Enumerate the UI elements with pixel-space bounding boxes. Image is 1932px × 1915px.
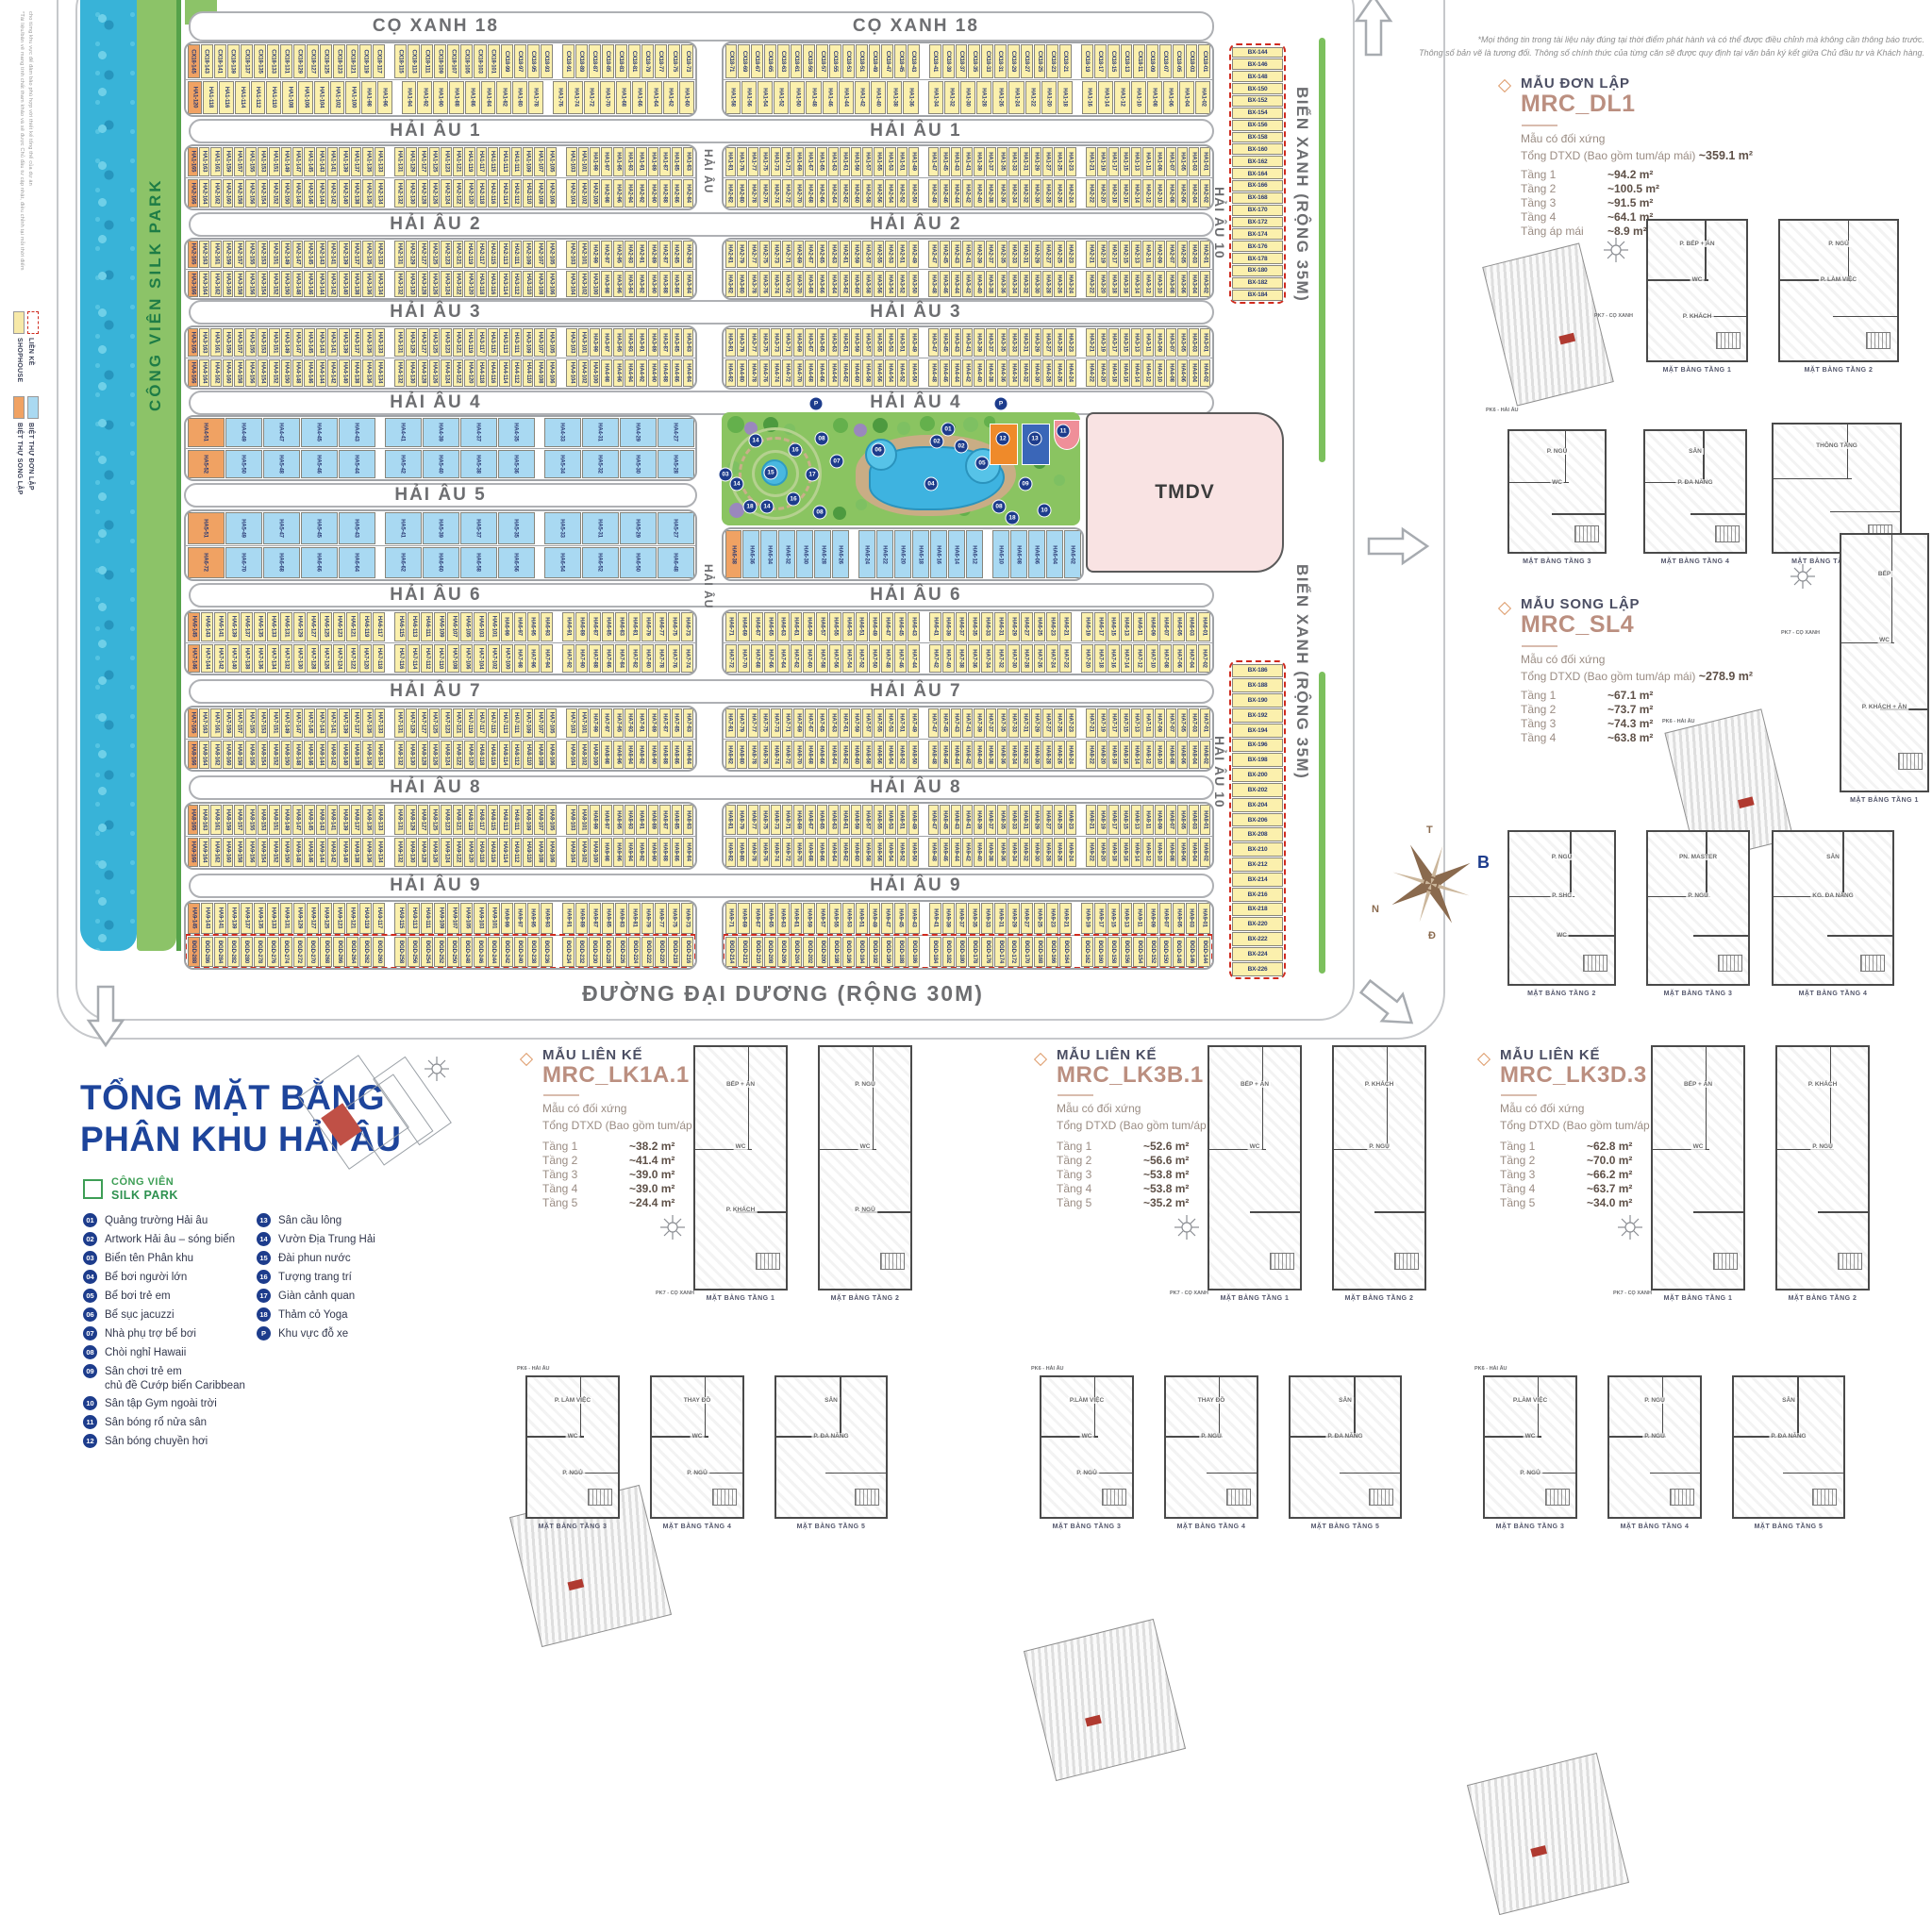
compass-north: B [1477,853,1490,873]
lot-cell: HA9-23 [1046,903,1058,934]
lot-cell: ĐGD-162 [1081,937,1093,968]
room-label: BẾP + ĂN [724,1081,757,1088]
lot-cell: HA2-71 [782,241,792,268]
model-lk3b-code: MRC_LK3B.1 [1057,1062,1204,1089]
lot-cell: HA6-23 [1046,612,1058,641]
legend-item-label: Sân tập Gym ngoài trời [105,1396,217,1409]
alley-gap [558,805,566,835]
lot-cell: HA6-61 [791,612,803,641]
alley-gap [919,359,927,388]
lot-cell: HA1-60 [679,81,694,115]
lot-cell: HA3-19 [1097,328,1108,357]
lot-cell: HA7-32 [994,644,1007,674]
lot-cell: CX18-39 [942,44,955,78]
lot-cell: HA7-101 [578,708,589,738]
alley-gap [920,644,928,674]
lot-cell: HA8-139 [339,805,349,835]
alley-gap [919,81,927,115]
lot-cell: HA2-01 [1200,241,1210,268]
lot-cell: HA5-36 [498,450,535,479]
lot-cell: HA6-89 [575,612,588,641]
lot-cell: HA1-143 [316,147,326,176]
lot-cell: HA9-49 [869,903,881,934]
lot-cell: HA1-77 [748,147,758,176]
lot-cell: HA7-93 [625,708,635,738]
lot-cell: HA8-34 [1008,741,1019,770]
lot-cell: HA9-122 [453,838,463,868]
lot-cell: HA3-164 [199,271,209,298]
lot-cell: HA4-134 [375,359,385,388]
lot-cell: HA9-116 [488,838,498,868]
floor-plan-caption: MẶT BẰNG TẦNG 1 [1840,792,1929,811]
lot-cell: HA4-160 [223,359,233,388]
alley-gap [1076,271,1085,298]
legend-item-number: 05 [83,1289,97,1303]
amenity-marker-05: 05 [975,457,990,471]
lot-cell: HA4-45 [301,418,338,447]
alley-gap [553,903,561,934]
lot-cell: HA7-81 [725,708,736,738]
lot-cell: HA2-144 [316,179,326,208]
lot-cell: HA2-151 [269,241,279,268]
lot-cell: ĐGD-214 [725,937,738,968]
lot-cell: HA9-05 [1173,903,1185,934]
lot-cell: HA1-159 [223,147,233,176]
lot-cell: HA6-02 [1064,530,1081,578]
lot-cell: HA1-05 [1177,147,1188,176]
lot-cell: HA1-103 [566,147,576,176]
lot-cell: CX18-77 [655,44,667,78]
lot-cell: CX18-83 [615,44,627,78]
stair-icon [1583,955,1607,972]
tree-icon [856,499,867,510]
lot-cell: BX-168 [1232,192,1283,204]
lot-cell: HA3-61 [840,328,850,357]
lot-cell: HA3-110 [523,271,533,298]
lot-cell: HA2-65 [817,241,827,268]
lot-cell: HA2-160 [223,179,233,208]
lot-cell: HA4-33 [544,418,581,447]
lot-cell: HA5-41 [385,512,422,544]
lot-cell: HA2-139 [339,241,349,268]
legend-item-number: 08 [83,1345,97,1359]
lot-cell: HA1-137 [351,147,361,176]
lot-cell: HA9-110 [523,838,533,868]
lot-cell: HA8-108 [534,741,544,770]
lot-cell: HA8-105 [546,805,557,835]
legend-item-label: Thảm cỏ Yoga [278,1307,348,1321]
lot-cell: HA8-155 [245,805,256,835]
plan-wall [1818,1211,1868,1213]
lot-cell: HA9-80 [737,838,747,868]
lot-cell: HA1-15 [1120,147,1130,176]
alley-gap [919,708,927,738]
lot-cell: HA3-116 [488,271,498,298]
lot-cell: HA6-48 [658,547,694,579]
lot-cell: HA8-118 [476,741,487,770]
lot-cell: HA8-55 [874,805,884,835]
lot-cell: ĐGD-278 [254,937,266,968]
room-label: WC [1555,932,1569,939]
lot-cell: BX-198 [1232,753,1283,767]
amenity-marker-07: 07 [830,455,844,469]
lot-cell: HA3-141 [327,328,338,357]
plan-wall [1219,1377,1221,1436]
alley-gap [543,81,552,115]
plan-wall [873,1047,874,1149]
lot-cell: HA7-49 [908,708,919,738]
lot-cell: ĐGD-168 [1034,937,1046,968]
lot-cell: HA1-28 [976,81,991,115]
plan-wall [825,1473,886,1474]
bx-column-bottom: BX-186BX-188BX-190BX-192BX-194BX-196BX-1… [1229,660,1286,979]
lot-cell: BX-214 [1232,873,1283,887]
lot-cell: HA1-81 [725,147,736,176]
road-bien-xanh-label-2: BIỂN XANH (RỘNG 35M) [1292,564,1311,779]
lot-cell: HA6-27 [1021,612,1033,641]
road-title-label: HẢI ÂU 4 [870,392,961,413]
lot-cell: BX-182 [1232,277,1283,289]
alley-gap [919,838,927,868]
legend-swatch-donlap [13,396,25,419]
location-inset-map [300,1057,451,1170]
lot-cell: HA2-17 [1108,241,1119,268]
lot-cell: HA2-95 [613,241,624,268]
legend-item-number: 06 [83,1307,97,1322]
bx-column-top: BX-144BX-146BX-148BX-150BX-152BX-154BX-1… [1229,43,1286,304]
lot-cell: HA3-69 [793,328,804,357]
lot-cell: HA7-36 [968,644,980,674]
lot-cell: HA9-42 [962,838,973,868]
tree-icon [833,418,848,433]
lot-cell: HA9-78 [748,838,758,868]
lot-cell: HA2-159 [223,241,233,268]
lot-cell: HA9-08 [1166,838,1176,868]
lot-cell: CX18-133 [267,44,279,78]
lot-cell: HA2-142 [327,179,338,208]
lot-cell: HA3-62 [840,271,850,298]
lot-cell: HA8-102 [578,741,589,770]
stair-icon [1713,1253,1738,1270]
lot-cell: HA2-02 [1200,179,1210,208]
lot-cell: HA4-156 [245,359,256,388]
lot-cell: HA8-26 [1054,741,1064,770]
lot-cell: HA7-30 [1008,644,1020,674]
lot-cell: HA2-74 [771,179,781,208]
plan-wall [1662,1377,1664,1436]
lot-cell: HA3-165 [188,328,198,357]
lot-cell: HA7-153 [258,708,268,738]
lot-cell: HA3-86 [672,271,682,298]
lot-cell: HA7-34 [981,644,993,674]
lot-cell: HA6-111 [421,612,433,641]
floor-plan-drawing: BẾPWCP. KHÁCH + ĂN [1840,533,1929,792]
sl4-locator-road-label-2: PK6 - HẢI ÂU [1662,719,1695,724]
lot-cell: HA2-35 [997,241,1008,268]
lot-cell: HA8-07 [1166,805,1176,835]
lot-cell: HA3-115 [488,328,498,357]
lot-cell: ĐGD-264 [346,937,358,968]
lot-cell: HA3-39 [974,328,984,357]
lot-cell: ĐGD-148 [1173,937,1185,968]
lot-cell: HA7-17 [1108,708,1119,738]
lot-cell: HA9-36 [997,838,1008,868]
lot-cell: HA9-144 [316,838,326,868]
lot-cell: HA3-153 [258,328,268,357]
lot-cell: HA3-132 [394,271,405,298]
lot-row: CX18-71CX18-69CX18-67CX18-65CX18-63CX18-… [724,43,1212,79]
lot-cell: HA5-32 [582,450,619,479]
lot-cell: HA9-45 [894,903,907,934]
lot-cell: HA1-121 [453,147,463,176]
lot-cell: HA3-65 [817,328,827,357]
legend-item-label: Chòi nghỉ Hawaii [105,1345,186,1358]
lot-cell: HA3-80 [737,271,747,298]
stair-icon [855,1489,879,1506]
lot-cell: HA9-90 [648,838,658,868]
lot-cell: HA3-53 [885,328,895,357]
lot-cell: HA8-113 [499,805,509,835]
lot-cell: HA9-146 [304,838,314,868]
lot-cell: HA1-16 [1082,81,1097,115]
lot-cell: HA1-104 [314,81,329,115]
lot-cell: HA5-30 [620,450,657,479]
lot-row: HA9-71HA9-69HA9-67HA9-65HA9-63HA9-61HA9-… [724,902,1212,935]
lot-cell: HA3-55 [874,328,884,357]
lot-cell: CX18-27 [1021,44,1033,78]
lk3d-locator-compass-icon [1618,1215,1642,1244]
lot-cell: HA2-158 [234,179,244,208]
room-label: P. NGỦ [1642,1397,1667,1404]
lk3b-locator-compass-icon [1174,1215,1199,1244]
lot-cell: HA7-35 [997,708,1008,738]
sl4-floor-plan-4: SÂNKG. ĐA NĂNGMẶT BẰNG TẦNG 4 [1772,830,1894,1005]
section-bullet-icon [1498,602,1511,615]
lk3d-floor-plan-3: P.LÀM VIỆCWCP. NGỦMẶT BẰNG TẦNG 3 [1483,1375,1577,1538]
lot-cell: HA4-36 [997,359,1008,388]
lot-cell: HA8-30 [1031,741,1041,770]
alley-gap [386,612,394,641]
lot-cell: HA1-20 [1041,81,1057,115]
lot-cell: HA2-37 [986,241,996,268]
lot-cell: HA8-141 [327,805,338,835]
lot-cell: HA3-79 [737,328,747,357]
lot-cell: HA3-124 [441,271,451,298]
lot-cell: ĐGD-192 [869,937,881,968]
floor-plan-drawing: SÂNP. ĐA NĂNG [1643,429,1747,554]
lot-cell: HA8-120 [464,741,475,770]
lot-strip-block: HA6-145HA6-143HA6-141HA6-139HA6-137HA6-1… [184,609,697,675]
road-title-label: HẢI ÂU 3 [870,302,961,323]
lot-cell: HA7-31 [1020,708,1030,738]
lot-cell: HA7-47 [928,708,939,738]
lot-cell: HA6-16 [930,530,947,578]
lot-cell: HA3-37 [986,328,996,357]
sl4-locator-compass-icon [1790,564,1815,593]
lot-cell: HA2-11 [1142,241,1153,268]
lot-cell: HA4-132 [394,359,405,388]
lot-cell: HA8-143 [316,805,326,835]
lot-cell: HA9-04 [1189,838,1199,868]
lot-cell: ĐGD-158 [1108,937,1120,968]
lot-cell: HA8-123 [441,805,451,835]
lot-cell: HA8-86 [672,741,682,770]
lot-cell: ĐGD-178 [968,937,980,968]
room-label: P. NGỦ [1518,1470,1542,1476]
lot-cell: HA4-88 [659,359,670,388]
lot-cell: HA9-108 [534,838,544,868]
lot-cell: HA9-65 [764,903,776,934]
lot-cell: HA9-94 [625,838,635,868]
lk3b-floor-plan-4: THAY ĐỒP. NGỦMẶT BẰNG TẦNG 4 [1164,1375,1258,1538]
lot-cell: HA1-97 [601,147,611,176]
lot-cell: HA8-85 [672,805,682,835]
lot-cell: HA7-26 [1034,644,1046,674]
lot-cell: HA3-163 [199,328,209,357]
lot-cell: HA3-145 [304,328,314,357]
lot-strip-block: HA3-165HA3-163HA3-161HA3-159HA3-157HA3-1… [184,325,697,390]
stair-icon [1718,955,1742,972]
lot-cell: HA3-31 [1020,328,1030,357]
lot-cell: HA3-16 [1120,271,1130,298]
lot-cell: HA9-129 [293,903,306,934]
lot-cell: HA7-15 [1120,708,1130,738]
legend-item-number: 11 [83,1415,97,1429]
plan-wall [1891,535,1893,642]
lot-cell: HA2-113 [499,241,509,268]
lot-cell: HA9-100 [590,838,600,868]
lot-strip-block: HA9-71HA9-69HA9-67HA9-65HA9-63HA9-61HA9-… [722,900,1214,970]
lot-cell: HA2-87 [659,241,670,268]
legend-park-swatch [83,1179,103,1199]
lot-cell: HA1-39 [974,147,984,176]
lot-cell: HA9-114 [499,838,509,868]
lot-cell: HA2-123 [441,241,451,268]
lot-cell: HA3-29 [1031,328,1041,357]
lot-cell: HA8-110 [523,741,533,770]
lot-cell: HA9-67 [751,903,763,934]
lot-cell: HA2-19 [1097,241,1108,268]
lot-cell: HA7-59 [851,708,861,738]
lot-cell: HA6-14 [948,530,965,578]
lot-cell: HA6-115 [394,612,407,641]
floor-plan-drawing: P. KHÁCHP. NGỦ [1332,1045,1426,1291]
lot-cell: HA2-124 [441,179,451,208]
lot-cell: ĐGD-176 [981,937,993,968]
lot-cell: HA9-63 [777,903,790,934]
lot-cell: ĐGD-284 [214,937,226,968]
lot-cell: HA2-12 [1142,179,1153,208]
room-label: P. NGỦ [685,1470,709,1476]
floor-plan-caption: MẶT BẰNG TẦNG 5 [774,1519,888,1538]
lot-cell: HA3-137 [351,328,361,357]
lot-cell: ĐGD-160 [1094,937,1107,968]
lot-cell: HA9-54 [885,838,895,868]
lot-cell: HA6-21 [1059,612,1072,641]
lot-cell: HA1-157 [234,147,244,176]
lot-cell: HA9-113 [408,903,420,934]
lot-cell: HA9-30 [1031,838,1041,868]
room-label: P. NGỦ [1199,1433,1224,1440]
lot-cell: HA3-14 [1131,271,1141,298]
lot-row: HA6-38HA6-36HA6-34HA6-32HA6-30HA6-28HA6-… [724,529,1082,579]
lot-cell: ĐGD-238 [527,937,540,968]
lot-cell: HA5-51 [188,512,225,544]
lot-cell: HA1-07 [1166,147,1176,176]
lot-cell: HA3-01 [1200,328,1210,357]
lot-cell: HA2-31 [1020,241,1030,268]
lot-cell: HA8-68 [805,741,815,770]
model-lk3d-locator-map [1467,1753,1629,1915]
model-sl4-category: MẪU SONG LẬP [1521,596,1640,612]
lot-cell: HA2-60 [851,179,861,208]
lot-cell: HA9-15 [1108,903,1120,934]
lot-cell: HA4-35 [498,418,535,447]
lot-cell: HA8-153 [258,805,268,835]
lot-cell: HA1-69 [793,147,804,176]
lot-cell: HA8-29 [1031,805,1041,835]
lot-cell: HA2-20 [1097,179,1108,208]
alley-gap [1073,44,1081,78]
lot-cell: HA1-56 [741,81,757,115]
lot-cell: HA2-117 [476,241,487,268]
lot-cell: HA9-03 [1186,903,1198,934]
lot-cell: HA8-145 [304,805,314,835]
room-label: WC [1691,1143,1706,1150]
plan-wall [1262,1047,1264,1149]
lot-cell: HA6-31 [994,612,1007,641]
lot-cell: HA4-56 [874,359,884,388]
lot-cell: HA8-140 [339,741,349,770]
lot-cell: HA3-106 [546,271,557,298]
lot-cell: BX-222 [1232,932,1283,946]
tree-icon [854,424,867,437]
road-hai-au-label-2: HẢI ÂU [702,564,715,608]
floor-plan-drawing: P. BẾP + ĂNWCP. KHÁCH [1646,219,1748,362]
lot-cell: HA8-106 [546,741,557,770]
legend-item-label: Bể bơi người lớn [105,1270,187,1283]
alley-gap [385,271,393,298]
floor-plan-caption: MẶT BẰNG TẦNG 2 [1332,1291,1426,1309]
lot-cell: HA1-03 [1189,147,1199,176]
lot-cell: HA7-29 [1031,708,1041,738]
lot-cell: HA4-20 [1097,359,1108,388]
lot-cell: CX18-49 [869,44,881,78]
lot-cell: HA2-116 [488,179,498,208]
lot-cell: HA3-121 [453,328,463,357]
room-label: WC [858,1143,873,1150]
lot-cell: HA7-103 [566,708,576,738]
lot-cell: HA8-132 [394,741,405,770]
floor-plan-drawing: SÂNP. ĐA NĂNG [1289,1375,1402,1519]
lot-cell: HA7-113 [499,708,509,738]
legend-park-label: CÔNG VIÊN SILK PARK [111,1176,178,1202]
stair-icon [880,1253,905,1270]
stair-icon [1102,1489,1126,1506]
alley-gap [385,179,393,208]
lot-strip-block: CX18-71CX18-69CX18-67CX18-65CX18-63CX18-… [722,42,1214,117]
lot-cell: HA6-97 [514,612,526,641]
lot-cell: BX-226 [1232,962,1283,976]
lk3d-floor-plan-1: BẾP + ĂNWCMẶT BẰNG TẦNG 1 [1651,1045,1745,1309]
amenity-marker-02: 02 [930,435,944,449]
lot-cell: HA6-109 [434,612,446,641]
floor-plan-caption: MẶT BẰNG TẦNG 2 [818,1291,912,1309]
lot-cell: HA1-51 [897,147,908,176]
lot-cell: HA4-164 [199,359,209,388]
lot-cell: HA6-143 [201,612,213,641]
lot-cell: HA9-104 [566,838,576,868]
